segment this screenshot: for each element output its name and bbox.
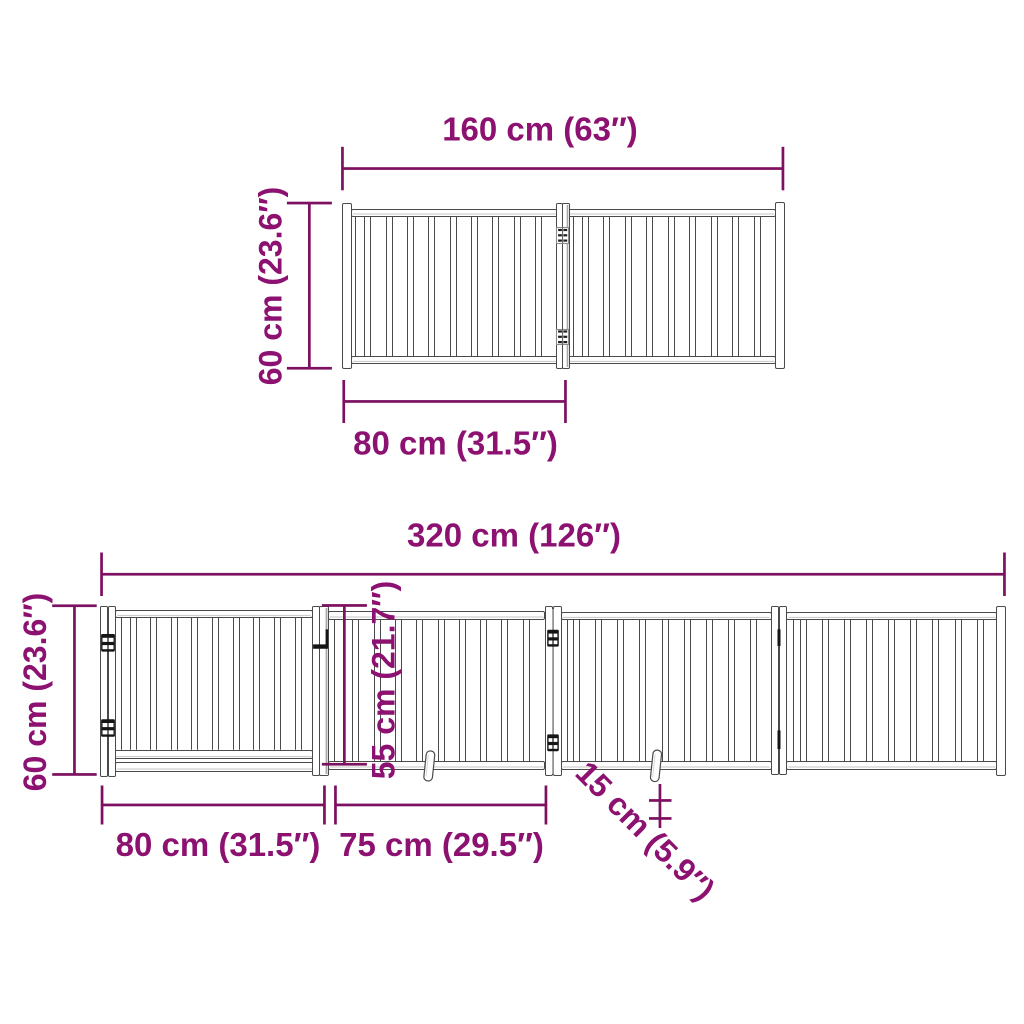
svg-text:60 cm (23.6″): 60 cm (23.6″) xyxy=(17,593,53,792)
svg-text:55 cm (21.7″): 55 cm (21.7″) xyxy=(366,581,402,780)
svg-text:60 cm (23.6″): 60 cm (23.6″) xyxy=(253,187,289,386)
svg-text:80 cm (31.5″): 80 cm (31.5″) xyxy=(353,425,558,462)
svg-text:75 cm (29.5″): 75 cm (29.5″) xyxy=(339,826,544,863)
svg-text:160 cm (63″): 160 cm (63″) xyxy=(442,111,638,148)
svg-text:320 cm (126″): 320 cm (126″) xyxy=(407,516,621,553)
svg-text:80 cm (31.5″): 80 cm (31.5″) xyxy=(116,826,321,863)
